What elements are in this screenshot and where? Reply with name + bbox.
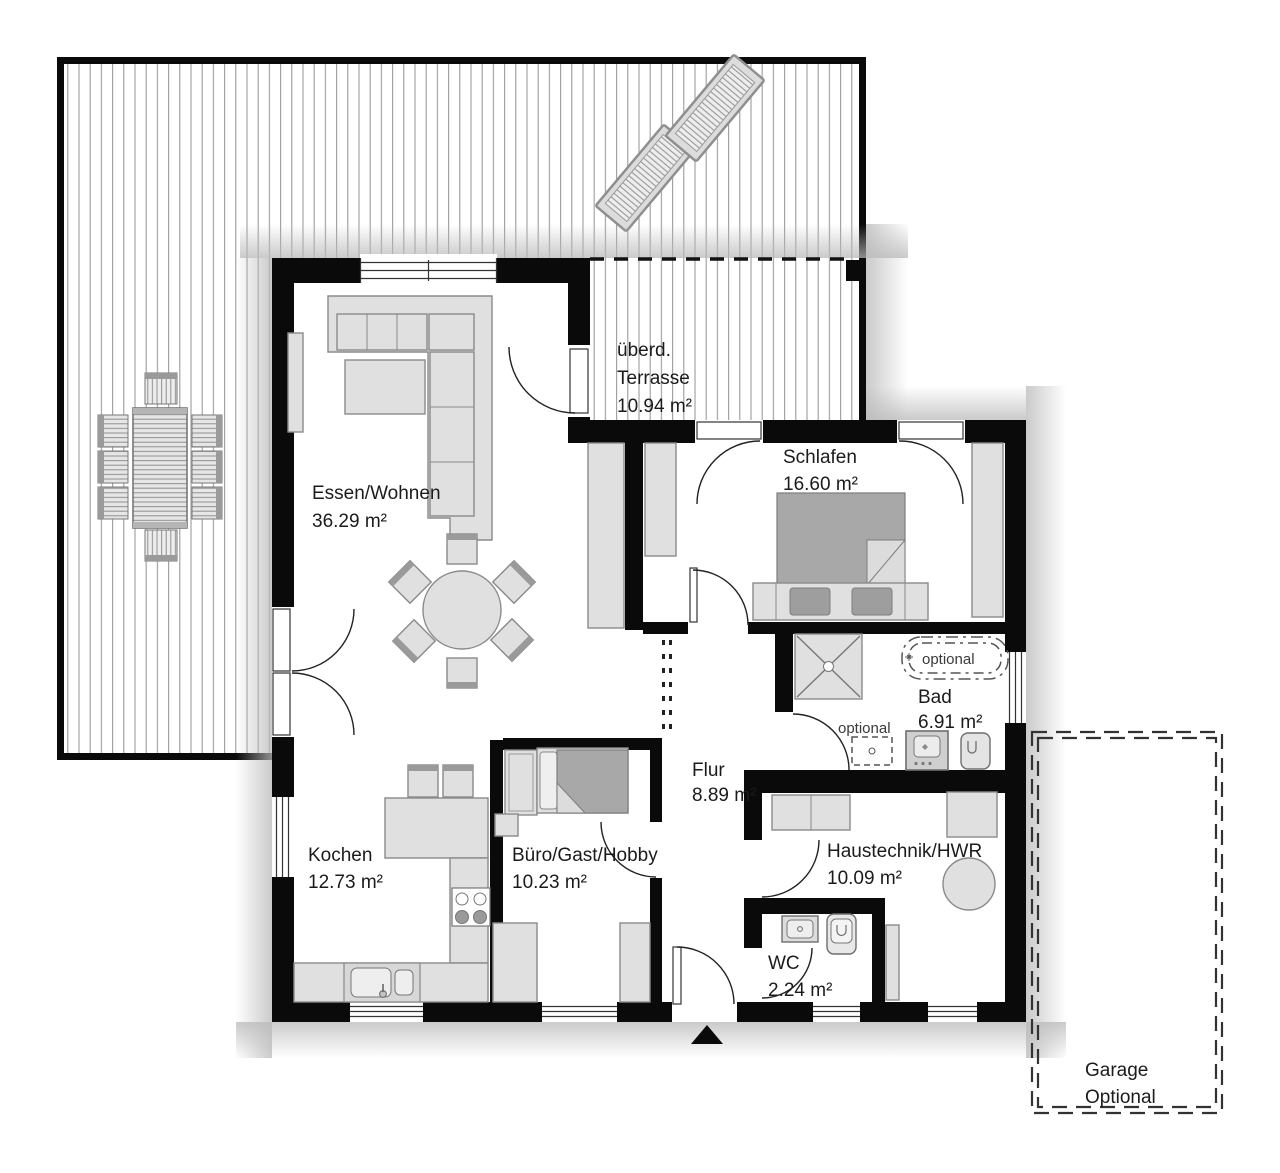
room-label-kochen: Kochen (308, 845, 372, 866)
window (360, 254, 497, 285)
room-area-flur: 8.89 m² (692, 785, 756, 806)
washbasin-optional-label: optional (838, 720, 891, 737)
window (542, 1002, 617, 1022)
sideboard (288, 333, 303, 432)
wardrobe (493, 923, 537, 1002)
floorplan-page: Essen/Wohnen 36.29 m² überd. Terrasse 10… (0, 0, 1280, 1173)
room-label-haustechnik: Haustechnik/HWR (827, 841, 982, 862)
single-bed (537, 748, 628, 813)
appliance (947, 792, 997, 837)
room-area-haustechnik: 10.09 m² (827, 868, 902, 889)
window (813, 1002, 860, 1022)
room-area-wc: 2.24 m² (768, 980, 832, 1001)
desk-chair (495, 814, 518, 836)
room-label-terrasse-1: überd. (617, 340, 671, 361)
floorplan-drawing: Essen/Wohnen 36.29 m² überd. Terrasse 10… (0, 0, 1280, 1173)
room-label-schlafen: Schlafen (783, 447, 857, 468)
boiler (943, 858, 995, 910)
wardrobe (972, 443, 1003, 617)
toilet (827, 914, 856, 954)
window (272, 797, 294, 877)
wardrobe (620, 923, 650, 1002)
garage-label-2: Optional (1085, 1087, 1156, 1108)
bathtub-optional-label: optional (922, 651, 975, 668)
room-label-essen-wohnen: Essen/Wohnen (312, 483, 441, 504)
wardrobe (645, 443, 676, 556)
room-label-buero: Büro/Gast/Hobby (512, 845, 658, 866)
room-area-buero: 10.23 m² (512, 872, 587, 893)
washbasin (782, 916, 818, 942)
cooktop (452, 888, 490, 926)
coffee-table (345, 360, 425, 414)
kitchen-island (385, 798, 488, 858)
garage-label-1: Garage (1085, 1060, 1148, 1081)
toilet (961, 733, 990, 769)
room-area-terrasse: 10.94 m² (617, 396, 692, 417)
shower (795, 634, 862, 699)
dining-table (423, 571, 501, 649)
tv-sideboard (588, 443, 624, 628)
room-label-flur: Flur (692, 760, 725, 781)
bed-platform (753, 583, 928, 620)
room-area-kochen: 12.73 m² (308, 872, 383, 893)
vanity-sink (906, 731, 948, 770)
room-label-bad: Bad (918, 687, 952, 708)
kitchen-sink (344, 963, 420, 1002)
window (350, 1002, 423, 1022)
room-area-essen-wohnen: 36.29 m² (312, 511, 387, 532)
room-area-bad: 6.91 m² (918, 712, 982, 733)
window (928, 1002, 977, 1022)
room-label-wc: WC (768, 953, 800, 974)
room-label-terrasse-2: Terrasse (617, 368, 690, 389)
desk (505, 750, 537, 815)
cabinet (886, 925, 899, 1000)
room-area-schlafen: 16.60 m² (783, 474, 858, 495)
